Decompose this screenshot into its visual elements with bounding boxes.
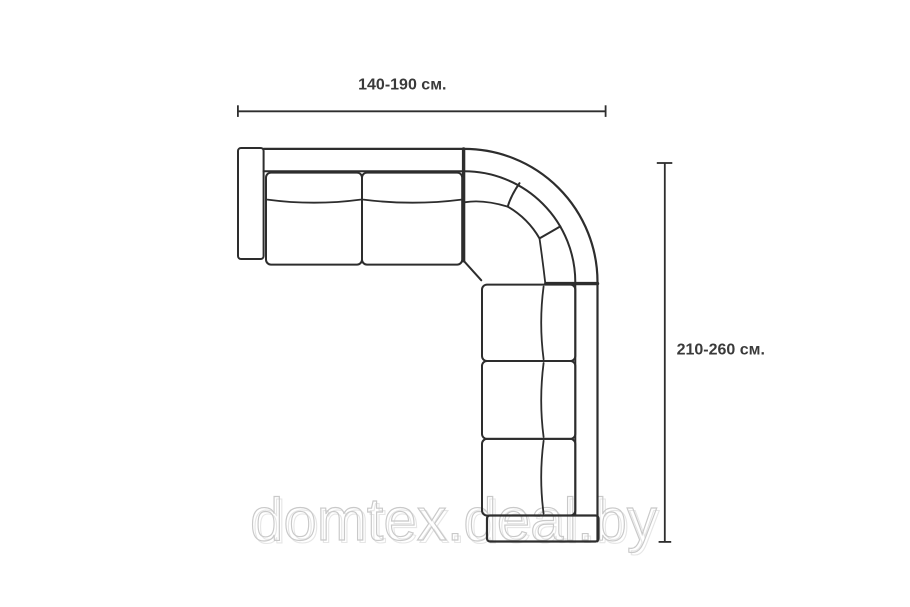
svg-text:domtex.deal.by: domtex.deal.by (250, 486, 657, 553)
svg-text:140-190 см.: 140-190 см. (358, 77, 446, 94)
svg-text:210-260 см.: 210-260 см. (677, 341, 765, 358)
